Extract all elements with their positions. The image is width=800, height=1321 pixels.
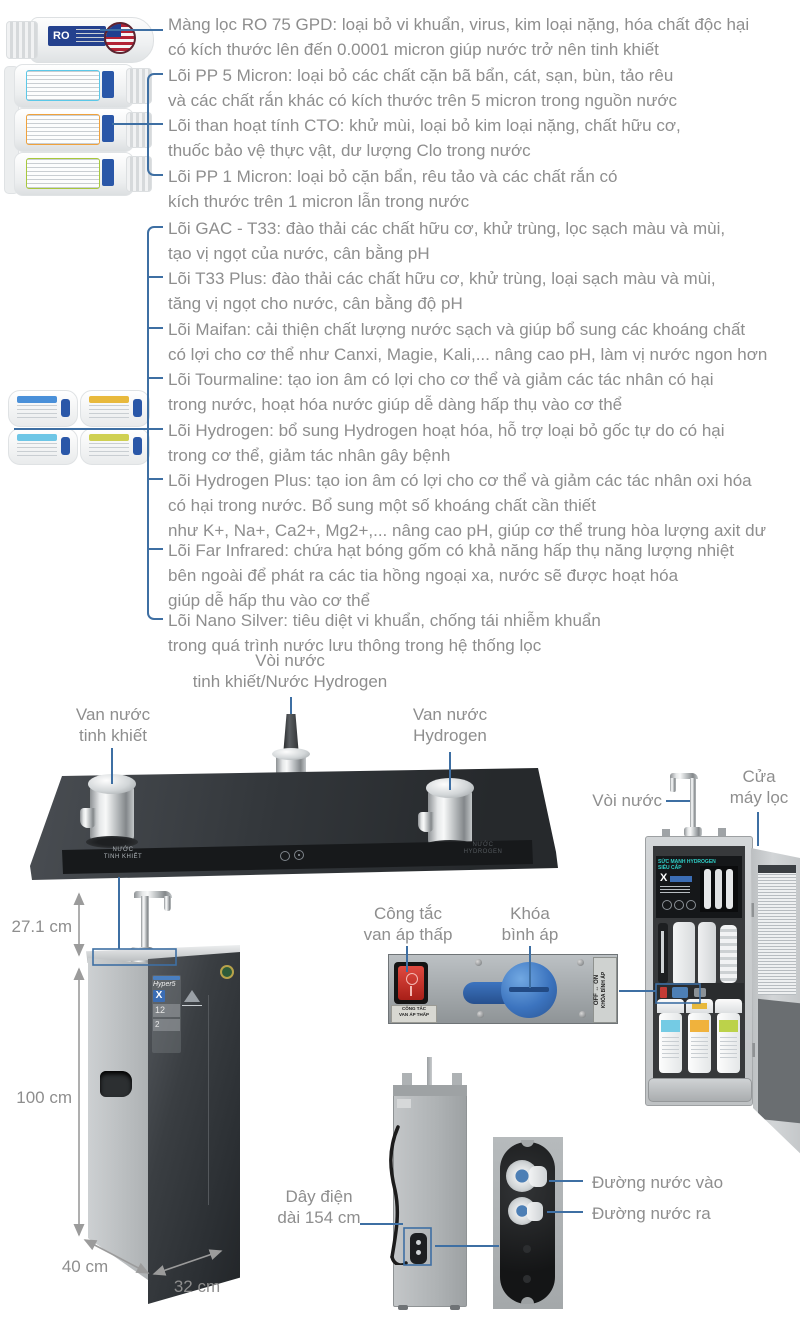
- filter-desc-pp1: Lõi PP 1 Micron: loại bỏ cặn bẩn, rêu tả…: [168, 164, 798, 214]
- round-badge-icon: [220, 965, 234, 979]
- machine-faucet-stem: [141, 896, 149, 954]
- lower-cartridge-orange: [688, 1013, 711, 1073]
- door-window: [758, 999, 800, 1123]
- dim-width-label: 32 cm: [162, 1276, 232, 1297]
- capsule-header: [89, 434, 129, 441]
- pure-water-knob-spout: [80, 808, 96, 828]
- cap-tag: [692, 1003, 707, 1009]
- port-notch: [521, 1297, 534, 1304]
- usa-flag-canton: [106, 24, 121, 37]
- power-icon: [280, 851, 290, 861]
- cartridge-label: [26, 70, 100, 101]
- mid-cartridge: [698, 922, 716, 986]
- capsule-t33: [80, 428, 150, 465]
- capsule-lines: [89, 443, 129, 457]
- lower-cap: [686, 999, 713, 1013]
- filter-desc-hydrogen: Lõi Hydrogen: bổ sung Hydrogen hoạt hóa,…: [168, 418, 798, 468]
- cartridge-band: [690, 1020, 709, 1032]
- door-spec-sheet: [758, 865, 796, 995]
- cartridge-pp5: [14, 64, 148, 106]
- back-foot: [450, 1305, 460, 1310]
- pressure-lock-sticker-text: OFF ↔ ON KHÓA BÌNH ÁP: [594, 957, 618, 1023]
- cartridge-label: [26, 114, 100, 145]
- label-right-valve: Van nước Hydrogen: [396, 704, 504, 746]
- cartridge-pp1: [14, 152, 148, 194]
- dim-height-label: 100 cm: [2, 1087, 72, 1108]
- filter-desc-cto: Lõi than hoạt tính CTO: khử mùi, loại bỏ…: [168, 113, 798, 163]
- cartridge-band: [102, 115, 114, 142]
- ro-membrane-cap: [6, 21, 38, 59]
- lower-cartridge-blue: [659, 1013, 682, 1073]
- window-filter-bar: [726, 869, 733, 909]
- back-top-strip: [393, 1085, 467, 1096]
- ro-membrane-image: RO: [4, 14, 154, 64]
- label-power-cord: Dây điện dài 154 cm: [268, 1186, 370, 1228]
- cartridge-text: [662, 1037, 679, 1061]
- cartridge-band: [719, 1020, 738, 1032]
- filter-desc-hydrogen-plus: Lõi Hydrogen Plus: tạo ion âm có lợi cho…: [168, 468, 798, 543]
- cartridge-label: [26, 158, 100, 189]
- faucet-column-collar: [272, 748, 310, 760]
- filter-desc-maifan: Lõi Maifan: cải thiện chất lượng nước sạ…: [168, 317, 798, 367]
- capsule-header: [89, 396, 129, 403]
- screw-icon: [579, 1011, 586, 1018]
- screw-icon: [477, 1011, 484, 1018]
- lower-cartridge-green: [717, 1013, 740, 1073]
- quad-filter-image: [4, 388, 152, 466]
- lower-cap: [657, 999, 684, 1013]
- brand-wordmark: [182, 1005, 202, 1009]
- front-seam-line: [208, 995, 209, 1205]
- cabinet-tray: [648, 1078, 752, 1102]
- door-sheet-header: [758, 865, 796, 873]
- machine-faucet-tip: [164, 896, 171, 911]
- switch-sticker: CÔNG TẮC VAN ÁP THẤP: [391, 1005, 437, 1023]
- filter-desc-t33-plus: Lõi T33 Plus: đào thải các chất hữu cơ, …: [168, 266, 798, 316]
- label-port-out: Đường nước ra: [592, 1203, 792, 1224]
- capsule-header: [17, 396, 57, 403]
- label-cabinet-door: Cửa máy lọc: [720, 766, 798, 808]
- filter-desc-gac-t33: Lõi GAC - T33: đào thải các chất hữu cơ,…: [168, 216, 798, 266]
- screw-icon: [577, 959, 584, 966]
- switch-rocker: [398, 966, 424, 1000]
- machine-badge: Hyper5 X 12 2: [152, 975, 181, 1053]
- capsule-nub: [61, 437, 70, 455]
- cartridge-band: [102, 71, 114, 98]
- water-port-image: [493, 1137, 563, 1309]
- valve-panel-image: CÔNG TẮC VAN ÁP THẤP OFF ↔ ON KHÓA BÌNH …: [388, 954, 618, 1024]
- hydrogen-panel: SỨC MẠNH HYDROGEN SIÊU CẤP X: [656, 856, 742, 918]
- capsule-header: [17, 434, 57, 441]
- label-valve: Khóa bình áp: [490, 903, 570, 945]
- hydrogen-knob-spout: [418, 812, 434, 832]
- strip-label-pure: NƯỚC TINH KHIẾT: [78, 847, 168, 861]
- capsule-maifan: [80, 390, 150, 427]
- fitting-blue: [672, 987, 688, 998]
- water-inlet-cap: [529, 1166, 547, 1187]
- label-top-faucet: Vòi nước tinh khiết/Nước Hydrogen: [170, 650, 410, 692]
- window-filter-bar: [715, 869, 722, 909]
- capsule-nub: [133, 437, 142, 455]
- uf-tube: [658, 923, 668, 983]
- label-port-in: Đường nước vào: [592, 1172, 792, 1193]
- cabinet-faucet-drop: [670, 778, 676, 792]
- label-cabinet-faucet: Vòi nước: [578, 790, 662, 811]
- badge-mode: 2: [153, 1019, 180, 1031]
- pressure-lock-sticker: OFF ↔ ON KHÓA BÌNH ÁP: [593, 957, 617, 1023]
- filter-desc-pp5: Lõi PP 5 Micron: loại bỏ các chất cặn bã…: [168, 63, 798, 113]
- panel-icon-dot: [674, 900, 684, 910]
- pure-water-knob-top: [88, 774, 136, 794]
- capsule-nub: [61, 399, 70, 417]
- mid-cartridge: [673, 922, 695, 986]
- port-screw: [523, 1275, 531, 1283]
- purifier-back-image: [380, 1055, 475, 1310]
- switch-bar: [410, 986, 412, 996]
- machine-side-panel: [88, 958, 148, 1280]
- dispense-icon: [294, 850, 304, 860]
- ribbed-cartridge: [720, 925, 737, 983]
- infographic-canvas: RO: [0, 0, 800, 1321]
- capsule-nub: [133, 399, 142, 417]
- dim-spout-label: 27.1 cm: [2, 916, 72, 937]
- panel-icon-dot: [662, 900, 672, 910]
- cartridge-cap: [126, 112, 152, 148]
- label-switch: Công tắc van áp thấp: [360, 903, 456, 945]
- hydrogen-panel-lines: [660, 886, 690, 894]
- sticker-lock-label: KHÓA BÌNH ÁP: [601, 957, 607, 1023]
- badge-stage: 12: [153, 1004, 180, 1017]
- capsule-lines: [89, 405, 129, 419]
- low-pressure-switch: [394, 962, 428, 1004]
- dim-depth-label: 40 cm: [50, 1256, 120, 1277]
- capsule-lines: [17, 405, 57, 419]
- filter-desc-far-infrared: Lõi Far Infrared: chứa hạt bóng gốm có k…: [168, 538, 798, 613]
- ro-label-text: RO: [53, 30, 70, 42]
- connector-pin: [416, 1250, 421, 1255]
- port-screw: [523, 1245, 531, 1253]
- filter-desc-tourmaline: Lõi Tourmaline: tạo ion âm có lợi cho cơ…: [168, 367, 798, 417]
- badge-brand: Hyper5: [153, 980, 180, 990]
- usa-flag-icon: [104, 22, 136, 54]
- three-filter-stack-image: [2, 64, 154, 196]
- uf-tube-label: [661, 931, 664, 973]
- open-cabinet-image: SỨC MẠNH HYDROGEN SIÊU CẤP X: [620, 765, 800, 1170]
- hydrogen-knob-top: [426, 778, 474, 798]
- purifier-front-image: Hyper5 X 12 2: [80, 885, 245, 1310]
- hydrogen-panel-logo-chip: [670, 876, 692, 882]
- switch-indicator: [406, 973, 418, 985]
- cabinet-door: [748, 843, 800, 1163]
- badge-model: X: [153, 990, 165, 1002]
- cartridge-cto: [14, 108, 148, 150]
- fitting-gray: [694, 988, 706, 997]
- connector-pin: [416, 1240, 421, 1245]
- machine-handle: [100, 1071, 132, 1097]
- lower-cap: [715, 999, 742, 1013]
- back-foot: [398, 1305, 408, 1310]
- hydrogen-panel-logo: X: [660, 872, 667, 884]
- filter-desc-ro: Màng lọc RO 75 GPD: loại bỏ vi khuẩn, vi…: [168, 12, 798, 62]
- window-filter-bar: [704, 869, 711, 909]
- cartridge-band: [102, 159, 114, 186]
- label-left-valve: Van nước tinh khiết: [60, 704, 166, 746]
- ro-label-lines: [76, 29, 104, 43]
- capsule-lines: [17, 443, 57, 457]
- pressure-valve-knob: [501, 962, 557, 1018]
- cartridge-cap: [126, 156, 152, 192]
- capsule-tourmaline: [8, 428, 78, 465]
- panel-icon-dot: [686, 900, 696, 910]
- cartridge-cap: [126, 68, 152, 104]
- water-outlet-cap: [527, 1202, 543, 1221]
- cabinet-top-nub: [718, 828, 726, 836]
- power-connector: [410, 1233, 427, 1264]
- strip-label-hydrogen: NƯỚC HYDROGEN: [438, 842, 528, 856]
- sticker-on-off: OFF ↔ ON: [594, 957, 601, 1023]
- back-label-chip: [397, 1099, 411, 1108]
- capsule-gac: [8, 390, 78, 427]
- cartridge-band: [661, 1020, 680, 1032]
- valve-knob-slot: [509, 987, 549, 992]
- screw-icon: [475, 959, 482, 966]
- fitting-red: [660, 987, 667, 998]
- cartridge-text: [720, 1037, 737, 1061]
- cartridge-text: [691, 1037, 708, 1061]
- brand-triangle-icon: [184, 990, 200, 1002]
- filter-window: [700, 866, 738, 912]
